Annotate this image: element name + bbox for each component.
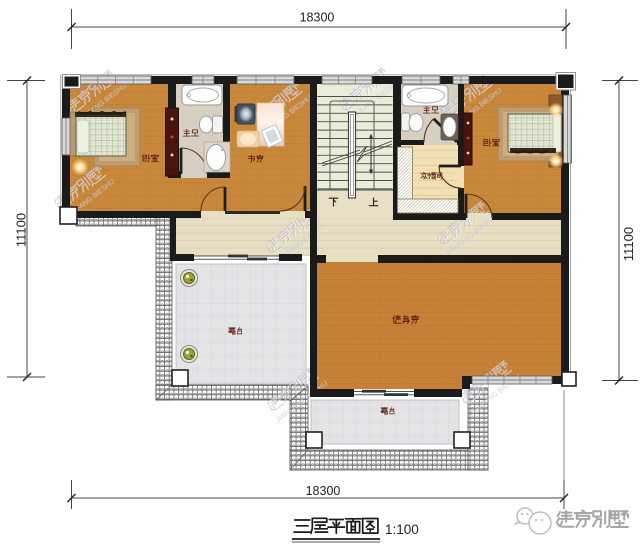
svg-text:1:100: 1:100 xyxy=(385,522,419,537)
svg-text:18300: 18300 xyxy=(306,484,341,498)
svg-text:11100: 11100 xyxy=(621,227,636,261)
svg-text:18300: 18300 xyxy=(300,11,335,25)
svg-text:11100: 11100 xyxy=(14,213,29,247)
